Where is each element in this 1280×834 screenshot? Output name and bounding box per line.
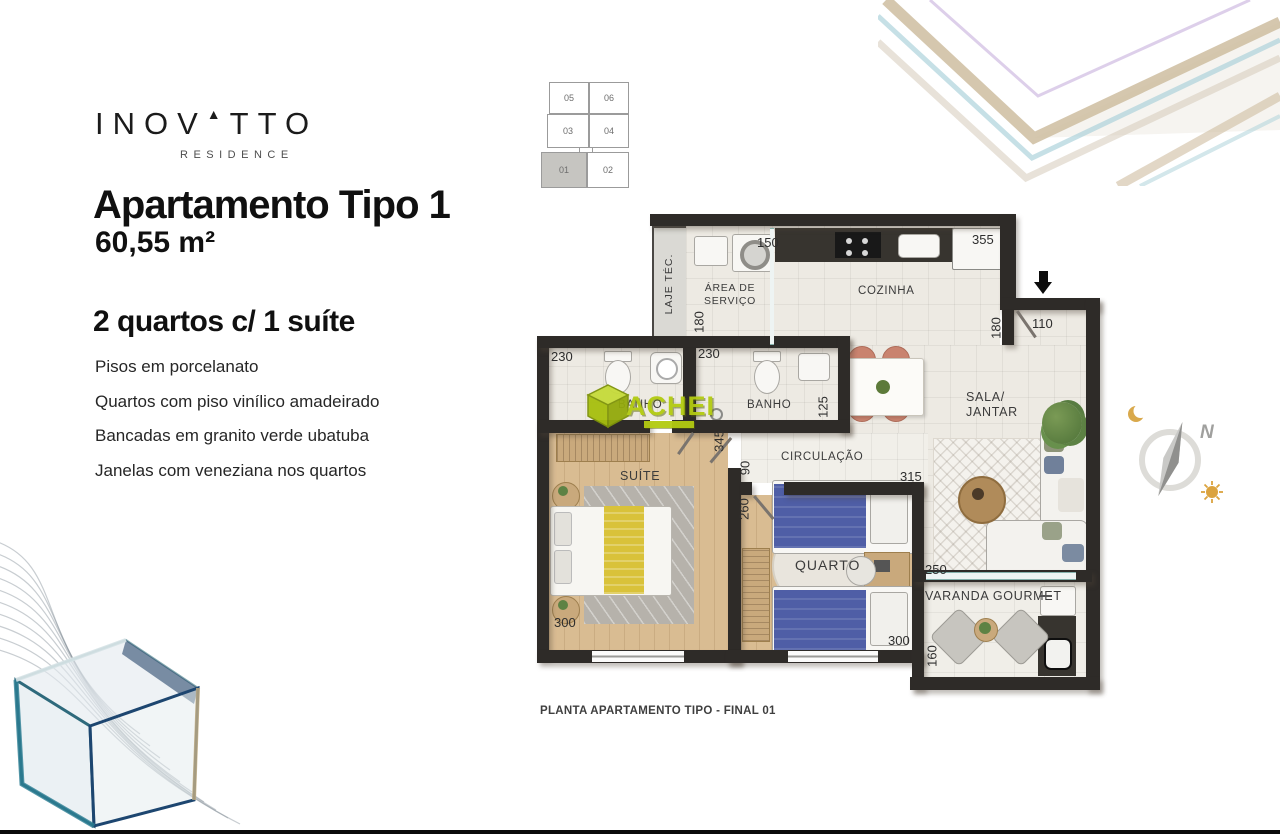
bathroom-sink-icon [798,353,830,381]
room-label-sala-line1: SALA/ [966,390,1005,404]
toilet-icon [754,360,780,394]
keyplan-unit-05: 05 [549,82,589,114]
wall [537,336,850,348]
entrance-arrow-icon [1034,271,1054,295]
room-label-cozinha: COZINHA [858,285,915,297]
wall [910,677,1100,690]
centerpiece-plant-icon [876,380,890,394]
dim-banho-suite-width: 230 [551,349,573,364]
dim-servico-height: 180 [692,311,707,333]
dim-banho-social-width: 230 [698,346,720,361]
dim-entry-width: 110 [1032,316,1053,331]
wall [1000,214,1016,310]
room-label-banho-social: BANHO [747,399,791,411]
sofa-pillow [1042,522,1062,540]
window [788,651,878,662]
logo-subtitle: RESIDENCE [180,149,294,161]
varanda-leader-line [1040,595,1052,597]
dim-fridge-width: 355 [972,232,994,247]
keyplan-unit-06: 06 [589,82,629,114]
keyplan-unit-label: 02 [603,165,613,175]
dim-hall-width: 90 [738,461,753,475]
arrow-head [1034,282,1052,294]
feature-item: Janelas com veneziana nos quartos [95,461,379,481]
keyplan-unit-label: 05 [564,93,574,103]
dim-servico-width: 150 [757,235,779,250]
dim-quarto-depth: 260 [737,498,752,520]
nightstand-plant-icon [558,600,568,610]
dim-banho-social-height: 125 [816,396,831,418]
keyplan-unit-label: 04 [604,126,614,136]
keyplan-unit-label: 06 [604,93,614,103]
coffee-table-decor-icon [972,488,984,500]
wall [1086,298,1100,690]
arrow-stem [1039,271,1048,282]
laptop-icon [874,560,890,572]
quarto-wardrobe [742,548,770,642]
room-label-sala-line2: JANTAR [966,405,1018,419]
room-label-circulacao: CIRCULAÇÃO [781,451,863,463]
wall [741,482,752,495]
glass-cube-decoration [0,534,242,834]
logo-text-left: INOV [95,106,207,141]
watermark: ACHEI [586,381,708,433]
compass-north-label: N [1200,422,1215,443]
cooktop-burners-icon [846,238,852,244]
kitchen-sink-icon [898,234,940,258]
varanda-sink-icon [1044,638,1072,670]
sofa-pillow [1044,456,1064,474]
features-list: Pisos em porcelanato Quartos com piso vi… [95,357,379,495]
logo: INOV▲TTO [95,106,318,142]
feature-item: Pisos em porcelanato [95,357,379,377]
bed-pillow [554,550,572,584]
nightstand-plant-icon [558,486,568,496]
sun-icon [1201,481,1223,503]
keyplan-unit-04: 04 [589,114,629,148]
watermark-text: ACHEI [626,391,715,422]
feature-item: Quartos com piso vinílico amadeirado [95,392,379,412]
logo-triangle-icon: ▲ [207,106,230,122]
dim-varanda-width: 250 [925,562,947,577]
dim-cozinha-height: 180 [989,317,1004,339]
dim-varanda-depth: 160 [925,645,940,667]
glass-prism-decoration [878,0,1280,186]
single-bed-blanket [774,590,866,650]
page-title: Apartamento Tipo 1 [93,183,450,228]
laundry-tank-icon [694,236,728,266]
keyplan-unit-03: 03 [547,114,589,148]
wall [1002,310,1014,345]
keyplan-unit-label: 01 [559,165,569,175]
bottom-border [0,830,1280,834]
room-label-laje: LAJE TÉC. [663,254,675,315]
sofa-pillow [1062,544,1084,562]
moon-icon [1128,404,1148,422]
wall [1000,298,1100,310]
specs-heading: 2 quartos c/ 1 suíte [93,305,355,339]
logo-text-right: TTO [230,106,318,141]
dim-sala-width: 315 [900,469,922,484]
plant-icon [1042,402,1082,444]
coffee-table [958,476,1006,524]
suite-bed-runner [604,506,644,594]
apartment-area: 60,55 m² [95,226,215,260]
floorplan-page: INOV▲TTO RESIDENCE Apartamento Tipo 1 60… [0,0,1280,834]
cooktop-icon [835,232,881,258]
wall [838,336,850,432]
keyplan-unit-label: 03 [563,126,573,136]
room-label-servico: ÁREA DE SERVIÇO [688,282,772,308]
window [592,651,684,662]
watermark-bar [644,421,694,428]
keyplan: 05 06 03 04 01 02 [533,74,645,196]
watermark-cube-icon [586,383,630,431]
feature-item: Bancadas em granito verde ubatuba [95,426,379,446]
wall [912,482,924,690]
plan-caption: PLANTA APARTAMENTO TIPO - FINAL 01 [540,705,776,717]
wall [650,214,1010,226]
wall [537,336,549,658]
suite-wardrobe [556,434,650,462]
basin-icon [656,358,678,380]
dim-quarto-width: 300 [888,633,910,648]
varanda-plant-icon [979,622,991,634]
room-label-quarto: QUARTO [795,557,860,573]
sofa-throw [1058,478,1084,512]
compass: N [1116,398,1228,510]
dim-suite-width: 300 [554,615,576,630]
dim-suite-depth: 345 [712,430,727,452]
keyplan-unit-01-highlighted: 01 [541,152,587,188]
room-label-suite: SUÍTE [620,469,660,483]
sliding-glass-door [926,572,1076,580]
bed-pillow [554,512,572,546]
keyplan-unit-02: 02 [587,152,629,188]
